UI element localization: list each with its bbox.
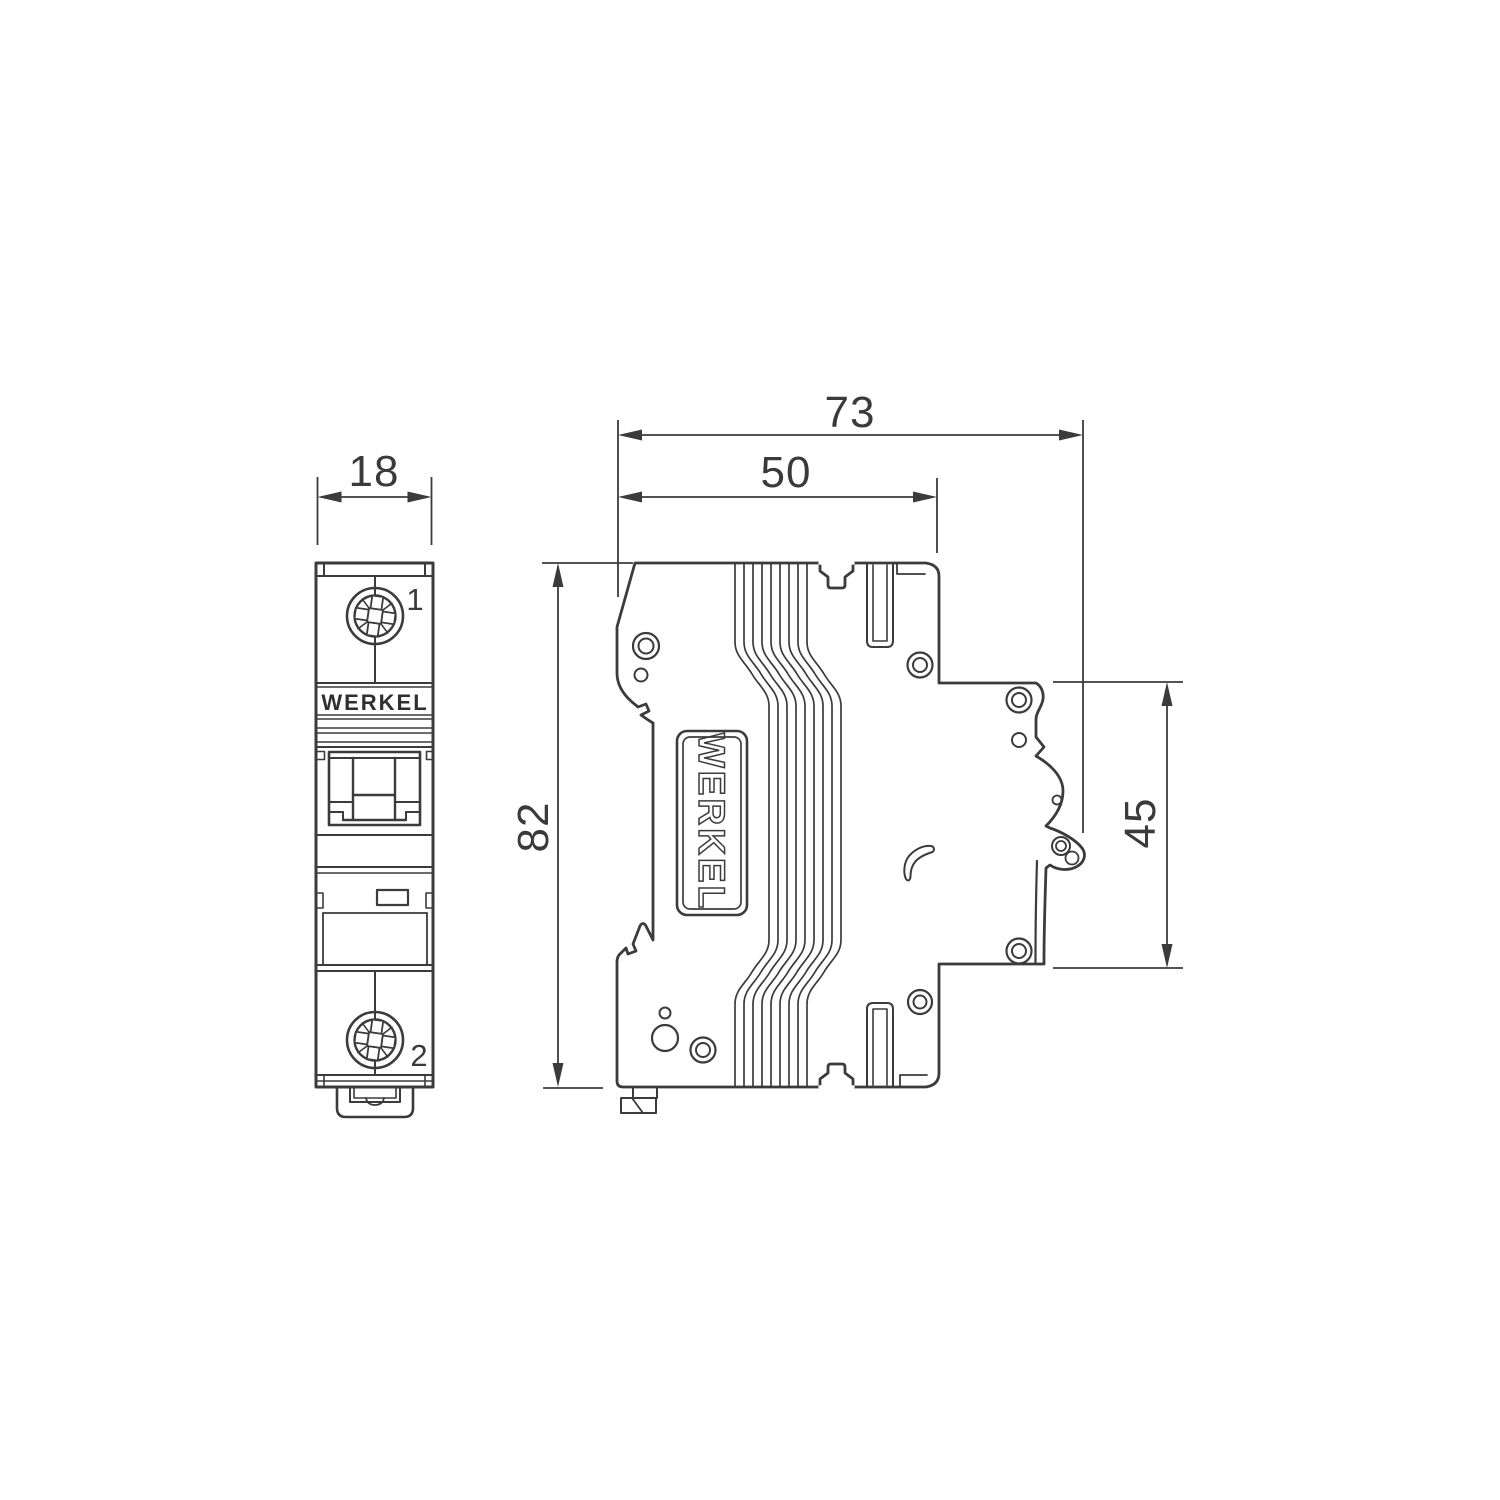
dim-73-label: 73 — [825, 388, 876, 437]
terminal-1-label: 1 — [406, 582, 423, 617]
brand-label-side: WERKEL — [691, 733, 732, 911]
terminal-2-label: 2 — [410, 1038, 427, 1073]
vent-slot-top — [867, 563, 893, 647]
dim-73 — [618, 420, 1083, 833]
side-body-outline — [617, 563, 1084, 1087]
dim-18-label: 18 — [349, 447, 400, 496]
front-view — [316, 563, 433, 1117]
brand-label-front: WERKEL — [321, 690, 428, 715]
breaker-dimension-drawing: 73 50 18 82 45 WERKEL WERKEL 1 2 — [0, 0, 1500, 1500]
vent-slot-bottom — [867, 1003, 893, 1087]
drawing-canvas: 73 50 18 82 45 WERKEL WERKEL 1 2 — [0, 0, 1500, 1500]
side-view — [617, 563, 1084, 1113]
housing-ribs — [735, 563, 841, 1087]
dim-82-label: 82 — [509, 802, 558, 853]
dim-45-label: 45 — [1116, 798, 1165, 849]
dim-50-label: 50 — [761, 448, 812, 497]
toggle-switch — [317, 752, 434, 826]
rivet-icons-right — [908, 653, 1062, 1015]
screw-terminal-2-icon — [347, 1012, 403, 1068]
din-clip-front — [337, 1087, 413, 1117]
din-clip-side — [621, 1087, 657, 1113]
marking-window — [377, 890, 408, 905]
screw-terminal-1-icon — [347, 588, 403, 644]
curved-slot — [904, 846, 934, 881]
